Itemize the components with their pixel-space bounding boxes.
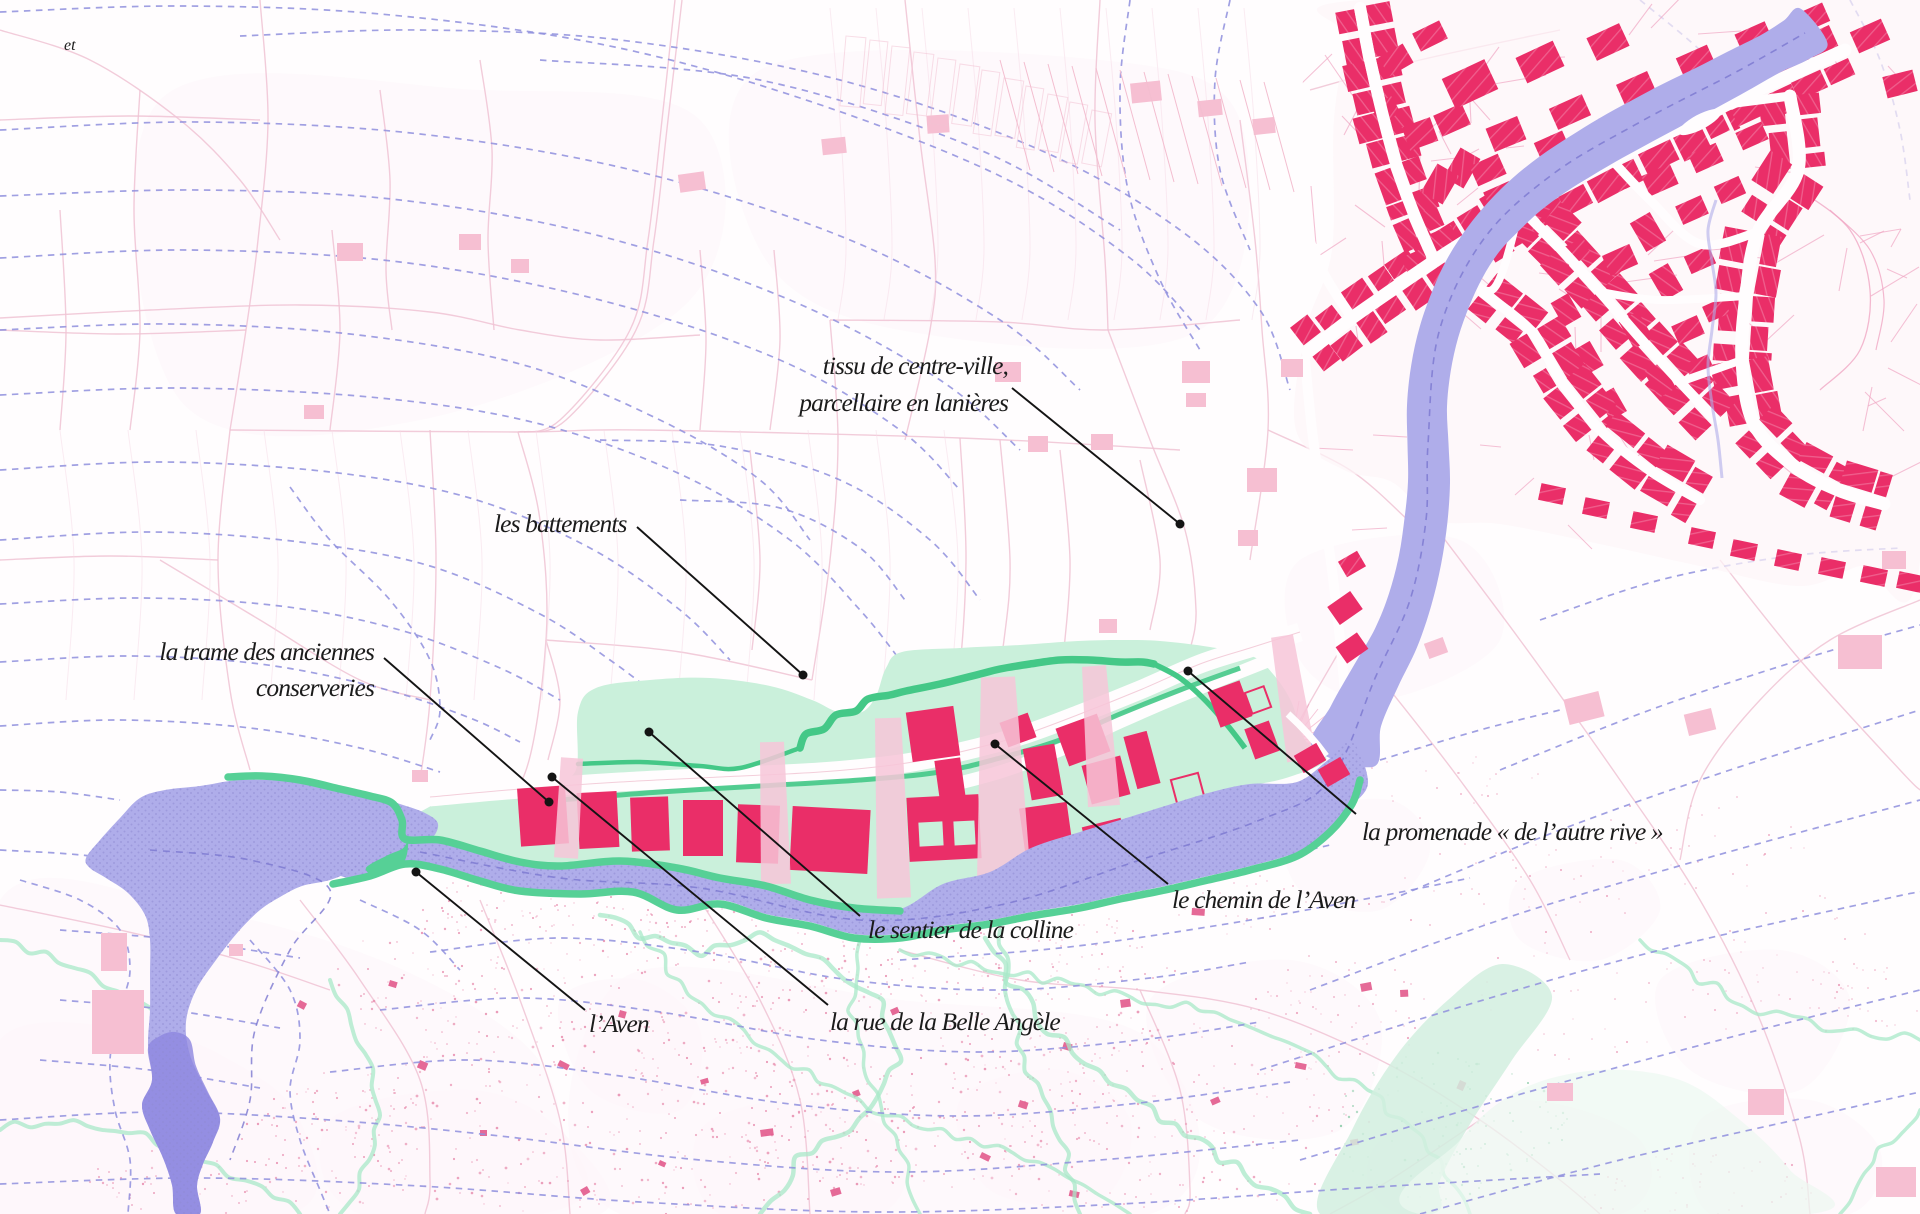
svg-text:la rue de la Belle Angèle: la rue de la Belle Angèle	[830, 1007, 1060, 1036]
svg-text:la promenade « de l’autre rive: la promenade « de l’autre rive »	[1362, 817, 1663, 846]
svg-text:la trame des anciennes: la trame des anciennes	[159, 637, 375, 666]
svg-text:les battements: les battements	[494, 509, 628, 538]
svg-text:parcellaire en lanières: parcellaire en lanières	[797, 388, 1009, 417]
svg-text:conserveries: conserveries	[256, 673, 375, 702]
svg-text:le chemin de l’Aven: le chemin de l’Aven	[1172, 885, 1355, 914]
svg-text:l’Aven: l’Aven	[589, 1009, 649, 1038]
svg-text:tissu de centre-ville,: tissu de centre-ville,	[823, 351, 1008, 380]
svg-text:le sentier de la colline: le sentier de la colline	[868, 915, 1074, 944]
svg-text:et: et	[64, 37, 76, 54]
